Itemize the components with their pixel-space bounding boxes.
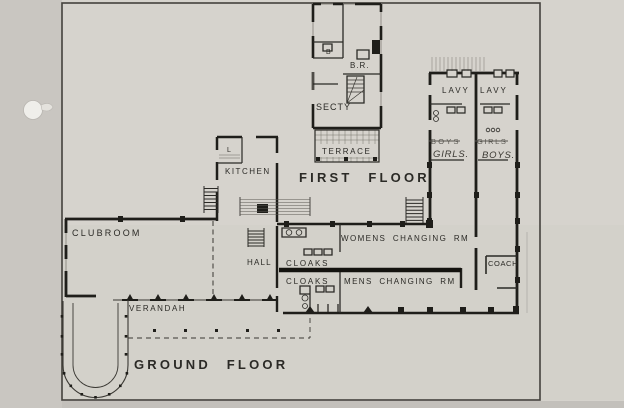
room-label-bath: B — [326, 49, 331, 56]
title-ground-floor: GROUND FLOOR — [134, 357, 288, 372]
room-label-larder: L — [227, 147, 231, 154]
room-label-clubroom: CLUBROOM — [72, 228, 142, 238]
flat-chimney — [372, 40, 380, 54]
room-label-bedroom: B.R. — [350, 61, 370, 70]
room-label-kitchen: KITCHEN — [225, 167, 271, 176]
room-label-womens-changing: WOMENS CHANGING RM — [341, 234, 469, 243]
hole-punch — [24, 101, 43, 120]
floor-plan-drawing: B B.R. SECTY TERRACE FIRST FLOOR LAVY LA… — [0, 0, 624, 408]
room-label-verandah: VERANDAH — [129, 304, 186, 313]
label-girls-handwritten: GIRLS. — [433, 149, 469, 160]
room-label-coach: COACH — [488, 259, 518, 268]
photo-left-margin — [0, 0, 62, 408]
room-label-lavy-right: LAVY — [480, 86, 508, 95]
room-label-terrace: TERRACE — [322, 147, 371, 156]
room-label-secretary: SECTY — [316, 102, 351, 112]
room-label-lavy-left: LAVY — [442, 86, 470, 95]
photo-bottom-edge — [62, 401, 624, 408]
title-first-floor: FIRST FLOOR — [299, 170, 430, 185]
room-label-cloaks-lower: CLOAKS — [286, 277, 329, 286]
room-label-cloaks-upper: CLOAKS — [286, 259, 329, 268]
floor-plan-photograph: B B.R. SECTY TERRACE FIRST FLOOR LAVY LA… — [0, 0, 624, 408]
label-boys-handwritten: BOYS. — [482, 150, 515, 161]
room-label-hall: HALL — [247, 258, 272, 267]
room-label-mens-changing: MENS CHANGING RM — [344, 277, 456, 286]
